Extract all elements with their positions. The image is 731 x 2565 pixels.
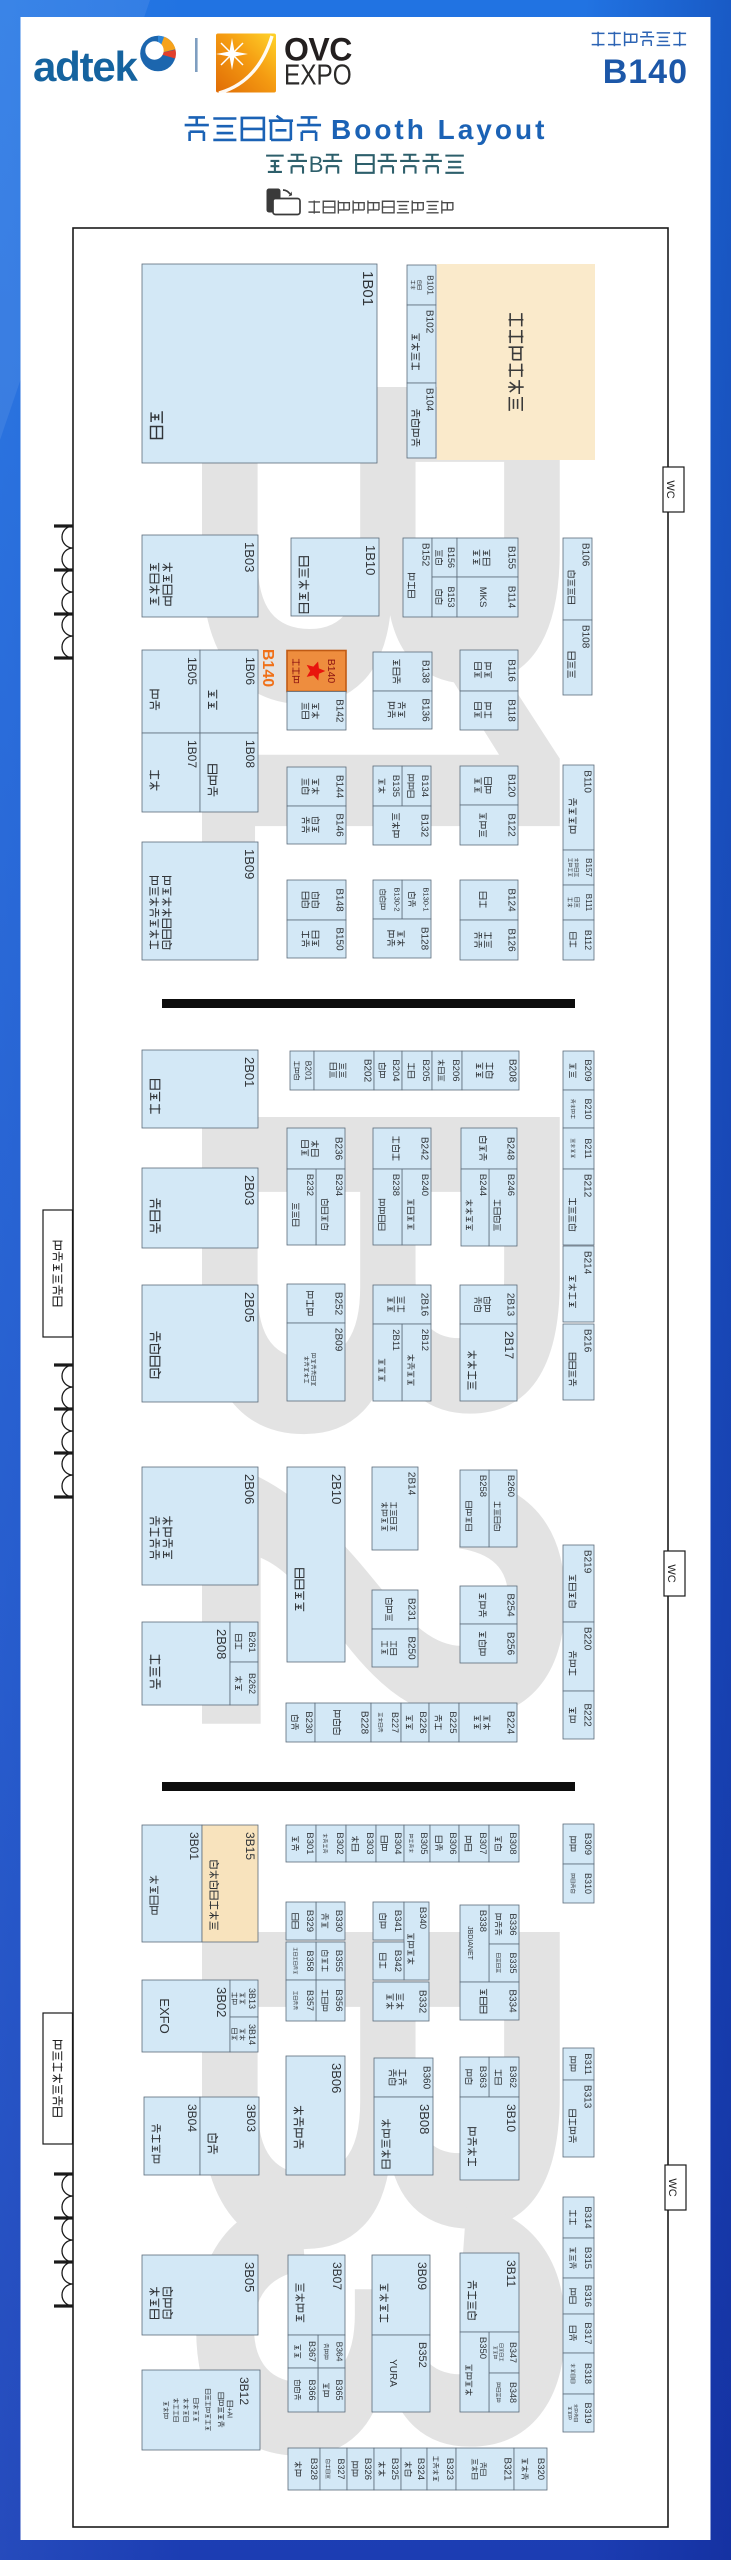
svg-text:B222: B222 xyxy=(582,1703,593,1727)
svg-text:B101: B101 xyxy=(426,275,436,295)
svg-text:B314: B314 xyxy=(582,2206,593,2228)
svg-text:2B08: 2B08 xyxy=(214,1629,229,1659)
svg-text:B250: B250 xyxy=(406,1636,417,1660)
svg-text:B114: B114 xyxy=(506,586,517,609)
svg-text:B227: B227 xyxy=(390,1712,400,1733)
svg-text:B157: B157 xyxy=(584,858,593,877)
svg-text:B144: B144 xyxy=(334,775,345,799)
svg-text:B323: B323 xyxy=(444,2458,455,2480)
svg-text:+AI: +AI xyxy=(226,2407,233,2418)
svg-text:B244: B244 xyxy=(477,1174,488,1196)
svg-text:B303: B303 xyxy=(364,1832,375,1854)
svg-text:B134: B134 xyxy=(419,775,430,797)
svg-text:1B01: 1B01 xyxy=(359,271,376,306)
svg-text:1B03: 1B03 xyxy=(242,542,257,572)
svg-text:B132: B132 xyxy=(419,814,430,838)
svg-text:2B12: 2B12 xyxy=(419,1329,430,1351)
svg-text:B360: B360 xyxy=(421,2066,432,2090)
svg-text:B122: B122 xyxy=(506,813,517,837)
svg-text:B214: B214 xyxy=(582,1251,593,1275)
svg-text:2B06: 2B06 xyxy=(242,1474,257,1504)
svg-text:B355: B355 xyxy=(333,1950,344,1972)
svg-text:B328: B328 xyxy=(308,2458,319,2480)
svg-text:3B08: 3B08 xyxy=(417,2104,432,2134)
svg-text:B315: B315 xyxy=(582,2247,593,2269)
svg-text:B135: B135 xyxy=(390,775,401,797)
svg-text:Booth Layout: Booth Layout xyxy=(331,114,547,145)
svg-text:B366: B366 xyxy=(307,2379,317,2400)
svg-text:B138: B138 xyxy=(420,660,431,684)
svg-text:B329: B329 xyxy=(304,1910,315,1932)
svg-text:B262: B262 xyxy=(247,1673,257,1694)
svg-text:B155: B155 xyxy=(506,546,517,570)
svg-text:3B10: 3B10 xyxy=(504,2104,518,2132)
svg-text:B260: B260 xyxy=(505,1475,516,1497)
svg-text:3B03: 3B03 xyxy=(244,2104,258,2132)
svg-text:B307: B307 xyxy=(477,1832,488,1854)
svg-text:3B02: 3B02 xyxy=(214,1987,229,2017)
svg-text:EXPO: EXPO xyxy=(284,59,352,91)
svg-text:B325: B325 xyxy=(389,2458,400,2480)
svg-text:WC: WC xyxy=(665,1564,677,1582)
svg-text:B310: B310 xyxy=(583,1873,593,1894)
svg-text:B230: B230 xyxy=(303,1711,314,1733)
svg-text:B258: B258 xyxy=(477,1475,488,1497)
svg-text:2B10: 2B10 xyxy=(329,1474,344,1504)
svg-text:B240: B240 xyxy=(419,1174,430,1196)
svg-text:B136: B136 xyxy=(420,698,431,722)
svg-text:B248: B248 xyxy=(505,1137,516,1161)
svg-text:B116: B116 xyxy=(506,659,517,682)
svg-text:B334: B334 xyxy=(507,1989,518,2013)
svg-text:B246: B246 xyxy=(505,1174,516,1196)
svg-text:B348: B348 xyxy=(508,2382,518,2403)
svg-text:B311: B311 xyxy=(582,2053,593,2074)
svg-text:B340: B340 xyxy=(417,1907,428,1929)
svg-text:B234: B234 xyxy=(333,1174,344,1196)
svg-text:B350: B350 xyxy=(477,2337,488,2359)
svg-text:B208: B208 xyxy=(507,1059,518,1083)
svg-text:B126: B126 xyxy=(506,928,517,952)
svg-text:B231: B231 xyxy=(406,1598,417,1622)
svg-text:B352: B352 xyxy=(416,2342,428,2368)
svg-text:B112: B112 xyxy=(583,930,593,950)
svg-text:B356: B356 xyxy=(333,1989,344,2011)
svg-text:B216: B216 xyxy=(582,1329,593,1353)
svg-text:B321: B321 xyxy=(502,2457,513,2481)
svg-text:adtek: adtek xyxy=(33,43,139,90)
svg-text:B202: B202 xyxy=(362,1059,373,1083)
svg-text:B367: B367 xyxy=(307,2341,317,2362)
svg-text:B211: B211 xyxy=(583,1138,593,1158)
svg-text:2B17: 2B17 xyxy=(502,1331,516,1359)
svg-text:B324: B324 xyxy=(415,2458,426,2480)
svg-text:B148: B148 xyxy=(334,888,345,912)
svg-text:2B05: 2B05 xyxy=(242,1292,257,1322)
svg-text:B146: B146 xyxy=(334,813,345,837)
svg-text:3B09: 3B09 xyxy=(415,2262,429,2290)
svg-text:2B13: 2B13 xyxy=(505,1293,516,1317)
svg-text:B362: B362 xyxy=(507,2066,518,2088)
svg-text:B140: B140 xyxy=(259,649,276,687)
svg-text:B256: B256 xyxy=(505,1632,516,1656)
svg-text:B204: B204 xyxy=(390,1059,401,1081)
svg-text:3B13: 3B13 xyxy=(247,1988,257,2009)
svg-text:1B10: 1B10 xyxy=(363,545,378,575)
svg-text:B326: B326 xyxy=(362,2458,373,2480)
svg-text:B306: B306 xyxy=(447,1832,458,1854)
svg-text:B142: B142 xyxy=(334,699,345,723)
svg-text:B332: B332 xyxy=(417,1990,428,2014)
svg-text:B124: B124 xyxy=(506,888,517,912)
svg-text:B305: B305 xyxy=(418,1832,429,1854)
svg-text:B242: B242 xyxy=(419,1137,430,1161)
svg-text:B130-2: B130-2 xyxy=(392,887,401,911)
svg-text:B357: B357 xyxy=(305,1990,315,2011)
svg-text:B364: B364 xyxy=(335,2342,345,2362)
svg-text:B212: B212 xyxy=(582,1174,593,1198)
svg-text:B254: B254 xyxy=(505,1593,516,1617)
svg-text:B226: B226 xyxy=(417,1711,428,1733)
svg-text:B330: B330 xyxy=(333,1910,344,1932)
svg-text:B327: B327 xyxy=(336,2458,346,2479)
svg-text:B236: B236 xyxy=(333,1137,344,1161)
svg-text:B153: B153 xyxy=(446,586,456,607)
svg-text:WC: WC xyxy=(666,2178,678,2196)
svg-text:JBDIANET: JBDIANET xyxy=(466,1926,473,1961)
svg-text:B317: B317 xyxy=(582,2322,593,2344)
svg-text:B104: B104 xyxy=(424,388,435,412)
svg-text:B347: B347 xyxy=(508,2342,518,2363)
svg-text:EXFO: EXFO xyxy=(157,1998,172,2033)
svg-text:B316: B316 xyxy=(582,2285,593,2307)
svg-text:B: B xyxy=(309,152,324,177)
svg-text:B318: B318 xyxy=(583,2363,593,2384)
svg-text:B206: B206 xyxy=(450,1059,461,1081)
svg-text:B252: B252 xyxy=(333,1292,344,1316)
svg-text:B363: B363 xyxy=(477,2066,488,2088)
svg-text:B308: B308 xyxy=(507,1832,518,1854)
svg-text:B120: B120 xyxy=(506,774,517,798)
svg-text:B106: B106 xyxy=(580,543,591,567)
svg-text:3B05: 3B05 xyxy=(242,2262,257,2292)
svg-text:B201: B201 xyxy=(304,1061,314,1081)
svg-text:B342: B342 xyxy=(392,1950,403,1972)
svg-text:3B01: 3B01 xyxy=(187,1832,201,1860)
svg-text:B205: B205 xyxy=(420,1059,431,1081)
svg-text:B228: B228 xyxy=(359,1711,370,1735)
svg-text:B152: B152 xyxy=(420,543,431,567)
svg-text:3B14: 3B14 xyxy=(247,2024,257,2045)
svg-text:MKS: MKS xyxy=(477,587,488,608)
svg-text:2B11: 2B11 xyxy=(390,1329,401,1350)
svg-text:B140: B140 xyxy=(603,53,688,91)
svg-text:B102: B102 xyxy=(424,310,435,334)
svg-text:B341: B341 xyxy=(392,1910,403,1932)
svg-text:B302: B302 xyxy=(334,1832,345,1854)
svg-text:1B08: 1B08 xyxy=(243,740,257,768)
svg-text:2B03: 2B03 xyxy=(242,1175,257,1205)
svg-text:2B14: 2B14 xyxy=(406,1472,417,1496)
svg-text:YURA: YURA xyxy=(387,2359,398,2387)
svg-text:2B01: 2B01 xyxy=(242,1057,257,1087)
svg-text:3B07: 3B07 xyxy=(330,2262,344,2290)
svg-text:B304: B304 xyxy=(392,1832,403,1854)
svg-text:1B05: 1B05 xyxy=(185,657,199,685)
svg-text:B111: B111 xyxy=(584,894,593,912)
svg-text:B301: B301 xyxy=(304,1832,315,1854)
svg-text:B335: B335 xyxy=(508,1952,518,1973)
svg-text:3B06: 3B06 xyxy=(329,2063,344,2093)
svg-text:1B09: 1B09 xyxy=(242,849,257,879)
svg-text:B338: B338 xyxy=(477,1910,488,1932)
svg-text:B358: B358 xyxy=(305,1950,315,1971)
svg-text:2B16: 2B16 xyxy=(419,1293,430,1317)
svg-text:WC: WC xyxy=(664,480,676,498)
svg-text:B219: B219 xyxy=(582,1550,593,1574)
svg-text:B224: B224 xyxy=(505,1711,516,1735)
svg-text:B365: B365 xyxy=(334,2379,344,2400)
svg-text:B313: B313 xyxy=(582,2085,593,2109)
svg-text:B130-1: B130-1 xyxy=(421,887,430,911)
svg-text:B156: B156 xyxy=(446,547,456,568)
svg-text:B320: B320 xyxy=(535,2458,546,2480)
svg-text:B118: B118 xyxy=(506,699,517,722)
svg-text:B319: B319 xyxy=(583,2402,593,2423)
svg-text:3B12: 3B12 xyxy=(237,2377,251,2405)
svg-text:B140: B140 xyxy=(325,659,337,684)
svg-text:1B07: 1B07 xyxy=(185,740,199,768)
svg-text:3B04: 3B04 xyxy=(185,2104,199,2132)
svg-text:3B11: 3B11 xyxy=(504,2260,518,2287)
svg-text:2B09: 2B09 xyxy=(333,1328,344,1352)
svg-text:B209: B209 xyxy=(582,1059,593,1081)
svg-text:B110: B110 xyxy=(582,770,593,793)
svg-text:B150: B150 xyxy=(334,927,345,951)
svg-text:1B06: 1B06 xyxy=(243,657,257,685)
svg-text:B261: B261 xyxy=(247,1631,257,1652)
svg-text:B225: B225 xyxy=(447,1711,458,1733)
svg-text:B309: B309 xyxy=(582,1833,593,1855)
svg-text:B108: B108 xyxy=(580,625,591,649)
svg-text:B128: B128 xyxy=(419,927,430,951)
svg-text:3B15: 3B15 xyxy=(243,1832,257,1860)
svg-text:B336: B336 xyxy=(507,1913,518,1935)
svg-text:B220: B220 xyxy=(582,1627,593,1651)
svg-text:B210: B210 xyxy=(583,1098,593,1119)
svg-text:B232: B232 xyxy=(304,1174,315,1196)
svg-text:B238: B238 xyxy=(390,1174,401,1196)
